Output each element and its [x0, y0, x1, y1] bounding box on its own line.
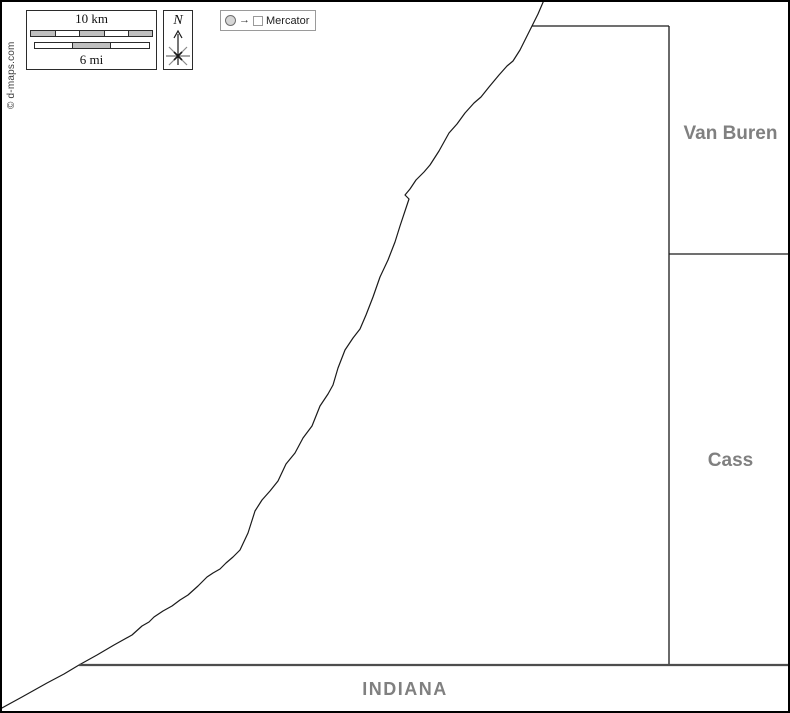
copyright-credit: © d-maps.com	[6, 41, 17, 109]
projection-badge: → Mercator	[220, 10, 316, 31]
scale-segment	[35, 43, 73, 48]
shoreline-path	[2, 2, 544, 709]
region-label-cass: Cass	[669, 450, 790, 472]
scale-segment	[31, 31, 55, 36]
region-label-indiana: INDIANA	[2, 679, 790, 700]
scale-km-bar	[30, 30, 153, 37]
map-frame: 10 km 6 mi N → Merc	[0, 0, 790, 713]
scale-km-label: 10 km	[75, 12, 108, 26]
scale-segment	[104, 31, 128, 36]
arrow-right-icon: →	[239, 15, 250, 26]
flat-map-square-icon	[253, 16, 263, 26]
projection-label: Mercator	[266, 15, 309, 27]
north-compass: N	[163, 10, 193, 70]
globe-circle-icon	[225, 15, 236, 26]
map-canvas	[2, 2, 788, 711]
scale-segment	[72, 43, 110, 48]
scale-mi-bar	[34, 42, 150, 49]
scale-mi-label: 6 mi	[80, 53, 103, 67]
scale-segment	[110, 43, 148, 48]
north-label: N	[164, 13, 192, 28]
scale-legend: 10 km 6 mi	[26, 10, 157, 70]
region-label-van-buren: Van Buren	[669, 123, 790, 145]
scale-segment	[79, 31, 103, 36]
scale-segment	[55, 31, 79, 36]
compass-star-icon	[164, 28, 192, 68]
scale-segment	[128, 31, 152, 36]
